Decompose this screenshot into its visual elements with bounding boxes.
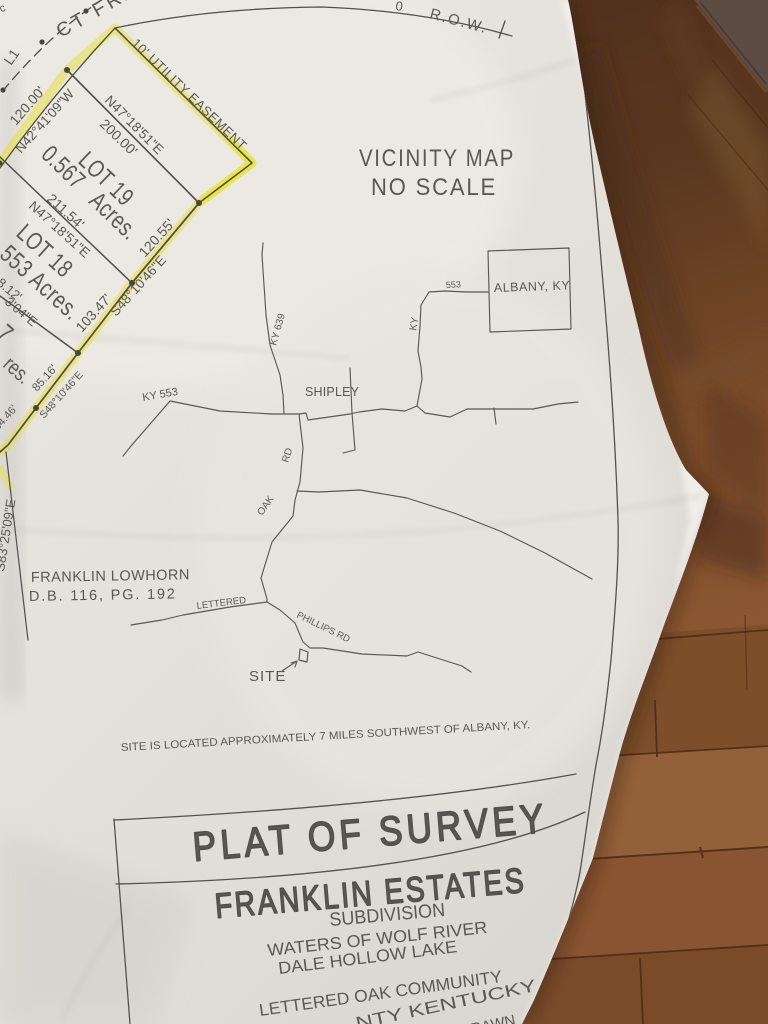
svg-text:KY: KY: [408, 316, 421, 331]
svg-text:VICINITY MAP: VICINITY MAP: [359, 145, 515, 172]
svg-text:553: 553: [446, 279, 462, 290]
svg-text:SITE: SITE: [249, 668, 286, 685]
svg-text:D.B. 116, PG. 192: D.B. 116, PG. 192: [29, 586, 176, 605]
svg-text:FRANKLIN LOWHORN: FRANKLIN LOWHORN: [31, 567, 191, 586]
svg-text:ALBANY, KY: ALBANY, KY: [494, 278, 571, 295]
svg-text:SHIPLEY: SHIPLEY: [305, 385, 360, 399]
svg-text:NO SCALE: NO SCALE: [371, 174, 497, 201]
